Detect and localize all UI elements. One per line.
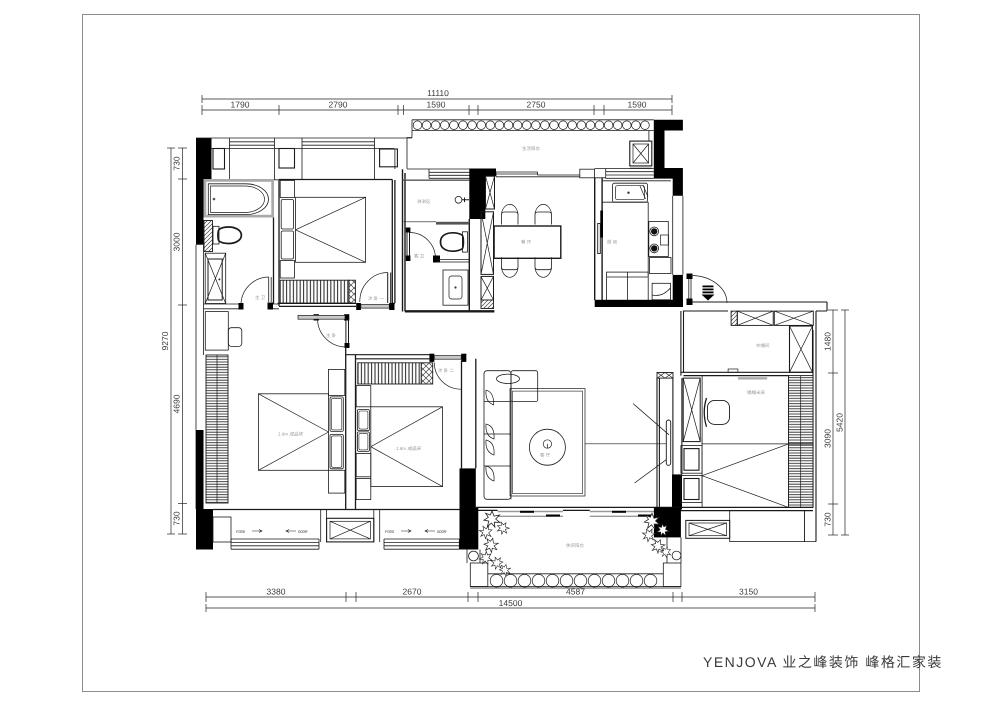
svg-text:000R: 000R bbox=[298, 529, 308, 534]
svg-text:1.8m 成品床: 1.8m 成品床 bbox=[396, 446, 422, 451]
svg-text:淋浴区: 淋浴区 bbox=[417, 199, 431, 204]
svg-text:生活阳台: 生活阳台 bbox=[522, 146, 540, 151]
svg-text:主 卫: 主 卫 bbox=[255, 295, 266, 300]
svg-text:1790: 1790 bbox=[231, 100, 250, 110]
svg-text:次 卧 一: 次 卧 一 bbox=[368, 296, 385, 301]
svg-text:3000: 3000 bbox=[172, 232, 182, 251]
svg-text:14500: 14500 bbox=[499, 598, 523, 608]
svg-text:次 卧 二: 次 卧 二 bbox=[438, 368, 455, 373]
svg-text:厨 房: 厨 房 bbox=[607, 240, 618, 245]
svg-text:榻榻米床: 榻榻米床 bbox=[747, 390, 765, 395]
svg-text:休闲阳台: 休闲阳台 bbox=[566, 543, 584, 548]
svg-text:4690: 4690 bbox=[172, 394, 182, 413]
svg-text:730: 730 bbox=[172, 511, 182, 525]
svg-text:客 卫: 客 卫 bbox=[414, 254, 425, 259]
svg-text:2750: 2750 bbox=[527, 100, 546, 110]
svg-text:客 厅: 客 厅 bbox=[540, 453, 551, 458]
svg-text:1480: 1480 bbox=[823, 332, 833, 351]
svg-text:F000: F000 bbox=[236, 529, 246, 534]
svg-text:F000: F000 bbox=[385, 529, 395, 534]
svg-text:11110: 11110 bbox=[427, 88, 449, 98]
svg-text:2670: 2670 bbox=[403, 587, 422, 597]
svg-text:3150: 3150 bbox=[739, 587, 758, 597]
svg-text:3090: 3090 bbox=[823, 429, 833, 448]
svg-text:YENJOVA 业之峰装饰 峰格汇家装: YENJOVA 业之峰装饰 峰格汇家装 bbox=[703, 654, 943, 670]
svg-text:3380: 3380 bbox=[267, 587, 286, 597]
svg-text:730: 730 bbox=[823, 512, 833, 526]
svg-text:730: 730 bbox=[172, 156, 182, 170]
svg-text:衣帽间: 衣帽间 bbox=[756, 343, 770, 348]
svg-text:2790: 2790 bbox=[329, 100, 348, 110]
svg-text:餐 厅: 餐 厅 bbox=[521, 240, 532, 245]
svg-text:000R: 000R bbox=[437, 529, 447, 534]
svg-text:1590: 1590 bbox=[628, 100, 647, 110]
svg-text:5420: 5420 bbox=[835, 413, 845, 432]
svg-text:1.8m 成品床: 1.8m 成品床 bbox=[278, 432, 304, 437]
svg-text:1590: 1590 bbox=[427, 100, 446, 110]
svg-text:9270: 9270 bbox=[160, 331, 170, 350]
svg-text:主 卧: 主 卧 bbox=[326, 333, 337, 338]
